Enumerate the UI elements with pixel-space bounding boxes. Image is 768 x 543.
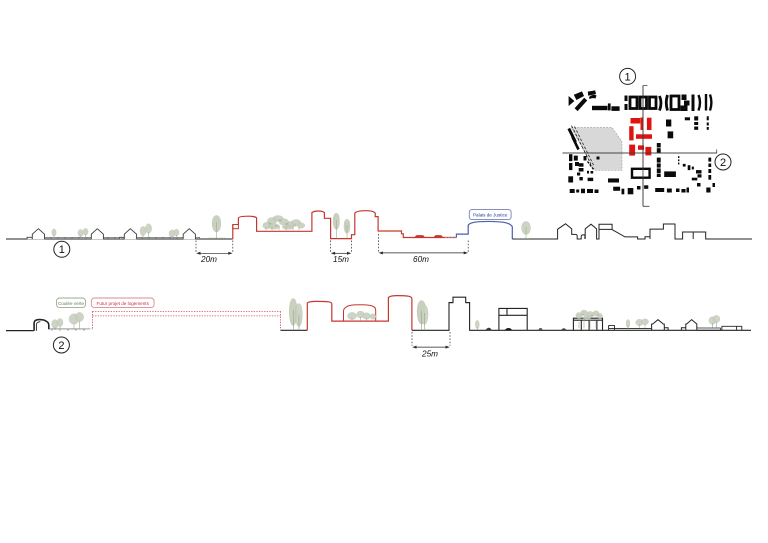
svg-text:20m: 20m (200, 255, 217, 264)
svg-text:60m: 60m (413, 255, 429, 264)
svg-text:Palais de Justice: Palais de Justice (473, 213, 508, 218)
svg-text:1: 1 (59, 244, 65, 256)
svg-text:2: 2 (720, 157, 726, 169)
svg-text:2: 2 (58, 340, 64, 352)
svg-text:15m: 15m (333, 255, 349, 264)
svg-text:Futur projet de logements: Futur projet de logements (97, 301, 150, 306)
svg-text:Coulée verte: Coulée verte (58, 301, 84, 306)
svg-text:1: 1 (625, 71, 631, 83)
svg-text:25m: 25m (421, 350, 438, 359)
